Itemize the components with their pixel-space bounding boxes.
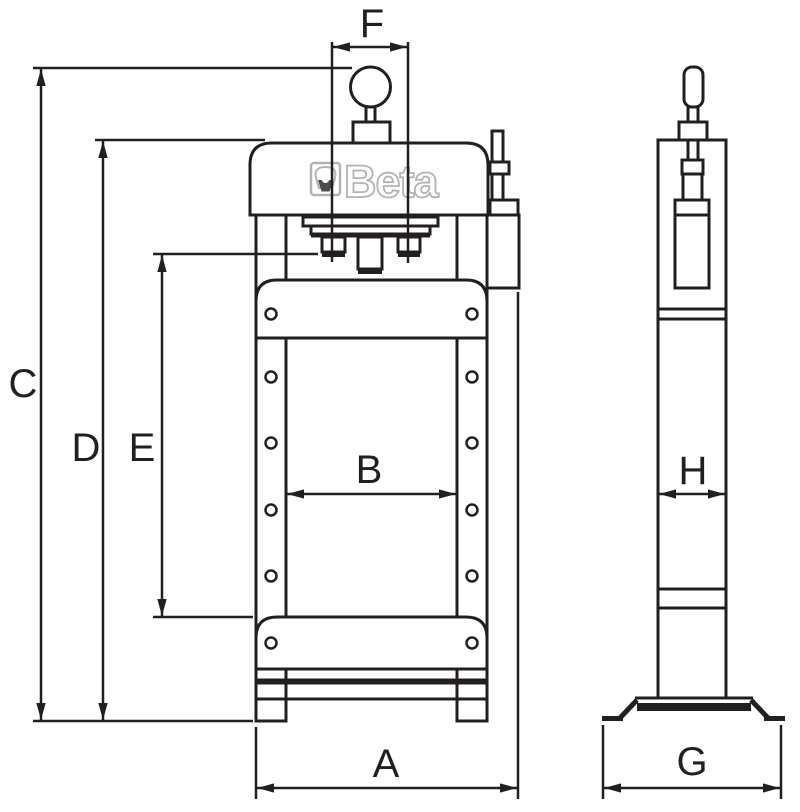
side-pump-rod xyxy=(688,140,698,160)
side-view xyxy=(602,67,785,721)
ram-bolt-left xyxy=(322,237,345,252)
side-pump-cap xyxy=(675,200,709,215)
side-pump-body xyxy=(675,215,709,288)
dim-label-f: F xyxy=(360,4,384,44)
pump-body xyxy=(487,215,519,288)
right-foot xyxy=(457,699,487,721)
press-dimensional-drawing: Beta xyxy=(0,0,800,812)
pump-rod xyxy=(492,174,503,200)
plate-hole xyxy=(266,309,277,320)
technical-drawing-canvas: Beta xyxy=(0,0,800,812)
beta-wrench-notch xyxy=(322,176,329,183)
dim-label-b: B xyxy=(356,450,383,490)
handle-grip xyxy=(684,67,703,107)
ram-piston xyxy=(358,237,382,269)
side-foot xyxy=(602,698,785,721)
dim-label-h: H xyxy=(679,451,708,491)
pump-lever-collar xyxy=(490,162,509,174)
pump-lever-socket xyxy=(492,131,503,162)
ram-plate-narrow xyxy=(311,226,430,234)
side-pump-block xyxy=(682,160,703,174)
dim-label-d: D xyxy=(72,428,101,468)
logo-text: Beta xyxy=(344,156,440,207)
left-foot xyxy=(256,699,286,721)
side-pump-cylinder xyxy=(683,174,702,200)
plate-hole xyxy=(467,638,478,649)
pump-flange xyxy=(490,200,518,215)
upper-cross-plate xyxy=(256,280,487,338)
gauge-ball xyxy=(351,67,391,107)
front-view: Beta xyxy=(250,67,519,721)
dim-label-e: E xyxy=(129,428,156,468)
handle-stem xyxy=(688,106,698,123)
ram-piston-tip xyxy=(358,268,382,274)
ram-bolt-left-tip xyxy=(322,251,345,257)
lower-bolster-plate xyxy=(256,617,487,669)
plate-hole xyxy=(266,638,277,649)
dim-label-a: A xyxy=(373,744,400,784)
base-strip-lower xyxy=(256,683,487,699)
dim-label-g: G xyxy=(676,742,707,782)
handle-collar xyxy=(679,122,707,140)
plate-hole xyxy=(467,309,478,320)
gauge-pedestal xyxy=(353,122,390,143)
dim-label-c: C xyxy=(9,364,38,404)
